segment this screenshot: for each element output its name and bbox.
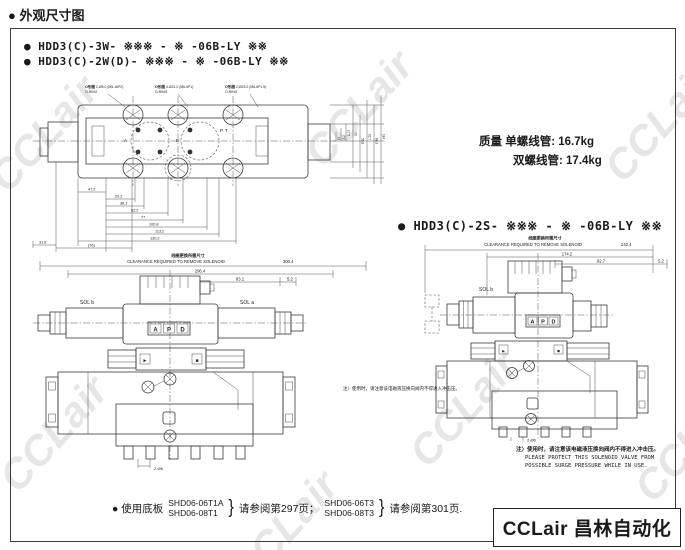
right-front-view: SOL b A P D ► ■ bbox=[425, 253, 648, 443]
subplate-reference: ● 使用底板 SHD06-06T1A SHD06-08T1 } 请参阅第297页… bbox=[112, 498, 462, 518]
dim-right-17-5: 17.5 bbox=[347, 130, 351, 136]
plate-letter-p: P bbox=[167, 328, 171, 334]
top-view-bottom-dims: 47.2 29.2 38.1 62.2 77 100.8 113.2 130.2… bbox=[33, 162, 236, 252]
note-english-line2: POSSIBLE SURGE PRESSURE WHILE IN USE. bbox=[516, 462, 659, 470]
right-drawing-note: 注〉使用时，请注意该电磁液压换向阀内不得进入冲击压。 PLEASE PROTEC… bbox=[516, 446, 659, 470]
callout-3-line1: 2-Ø23.0 (M6-6P1.5) bbox=[236, 85, 266, 89]
dim-bottom-38-1: 38.1 bbox=[120, 202, 127, 206]
callout-1-title: O形圈 bbox=[85, 84, 95, 89]
plate-letter-p: P bbox=[541, 320, 545, 326]
page-title: ● 外观尺寸图 bbox=[8, 5, 84, 24]
subplate-model: SHD06-08T1 bbox=[168, 508, 223, 518]
dim-5-2: 5.2 bbox=[287, 277, 293, 282]
dim-92-7: 92.7 bbox=[597, 259, 606, 264]
top-view: A B P. T bbox=[33, 96, 336, 186]
callout-3-title: O形圈 bbox=[225, 84, 235, 89]
weight-single: 单螺线管: 16.7kg bbox=[505, 136, 594, 148]
plate-letter-d: D bbox=[180, 328, 185, 334]
subplate-bullet-label: ● 使用底板 bbox=[112, 501, 163, 516]
right-technical-drawing: 线圈更换所需尺寸 CLEARANCE REQUIRED TO REMOVE SO… bbox=[395, 233, 685, 443]
brace-glyph: } bbox=[379, 497, 384, 519]
dim-296-4: 296.4 bbox=[195, 269, 206, 274]
dim-bottom-113-2: 113.2 bbox=[155, 230, 164, 234]
model-list: ● HDD3(C)-3W- ※※※ - ※ -06B-LY ※※ ● HDD3(… bbox=[24, 39, 289, 69]
weight-double: 双螺线管: 17.4kg bbox=[513, 155, 602, 167]
stud-dim-label: 2-Ø6 bbox=[154, 466, 164, 471]
dim-right-86-9: 86.9 bbox=[375, 138, 379, 144]
clearance-en: CLEARANCE REQUIRED TO REMOVE SOLENOID bbox=[484, 242, 582, 247]
note-chinese: 注〉使用时，请注意该电磁液压换向阀内不得进入冲击压。 bbox=[516, 446, 659, 454]
spool-symbol-right-icon: ■ bbox=[557, 349, 560, 354]
clearance-value: 242.4 bbox=[621, 242, 632, 247]
weight-label: 质量 bbox=[479, 136, 502, 148]
company-logo-box: CCLair 昌林自动化 bbox=[493, 508, 681, 547]
subplate-ref-page-297: 请参阅第297页； bbox=[239, 501, 320, 516]
clearance-cn: 线圈更换所需尺寸 bbox=[528, 235, 562, 242]
plate-letter-a: A bbox=[153, 328, 158, 334]
weight-spec: 质量 单螺线管: 16.7kg 双螺线管: 17.4kg bbox=[479, 133, 602, 171]
dim-bottom-76: (76) bbox=[88, 244, 95, 248]
model-line-2s: ● HDD3(C)-2S- ※※※ - ※ -06B-LY ※※ bbox=[398, 219, 662, 233]
subplate-model: SHD06-06T3 bbox=[324, 498, 374, 508]
top-view-right-dims: 11 7.9 17.5 73 56.8 92.7 86.9 114 bbox=[330, 95, 386, 184]
brace-glyph: } bbox=[229, 497, 234, 519]
subplate-model: SHD06-08T3 bbox=[324, 508, 374, 518]
stud-dim-label: 2-Ø6 bbox=[527, 438, 537, 443]
dim-bottom-77: 77 bbox=[141, 216, 145, 220]
dim-bottom-47-2: 47.2 bbox=[88, 188, 95, 192]
dim-174-2: 174.2 bbox=[562, 252, 573, 257]
note-english-line1: PLEASE PROTECT THIS SOLENOID VALVE FROM bbox=[516, 454, 659, 462]
front-view: SOL b SOL a A P D ► ■ bbox=[33, 270, 308, 471]
dim-bottom-130-2: 130.2 bbox=[150, 237, 160, 241]
model-line-2wd: ● HDD3(C)-2W(D)- ※※※ - ※ -06B-LY ※※ bbox=[24, 54, 289, 69]
dim-right-7-9: 7.9 bbox=[342, 135, 346, 140]
port-b-label: B bbox=[176, 138, 179, 143]
sol-a-label: SOL a bbox=[240, 300, 254, 306]
dim-right-114: 114 bbox=[382, 134, 386, 139]
right-clearance-dim: 线圈更换所需尺寸 CLEARANCE REQUIRED TO REMOVE SO… bbox=[425, 235, 667, 296]
callout-3-line2: O-RING bbox=[225, 90, 238, 94]
spool-symbol-right-icon: ■ bbox=[195, 358, 198, 364]
subplate-group2: SHD06-06T3 SHD06-08T3 bbox=[324, 498, 374, 518]
port-pt-label: P. T bbox=[220, 128, 228, 133]
model-line-3w: ● HDD3(C)-3W- ※※※ - ※ -06B-LY ※※ bbox=[24, 39, 289, 54]
dim-bottom-31-8: 31.8 bbox=[39, 241, 46, 245]
callout-2-line1: 4-Ø21.0 (M6-6P1) bbox=[166, 85, 193, 89]
dim-bottom-62-2: 62.2 bbox=[131, 209, 138, 213]
dim-bottom-100-8: 100.8 bbox=[149, 223, 159, 227]
sol-b-label: SOL b bbox=[479, 287, 493, 293]
clearance-cn: 线圈更换所需尺寸 bbox=[171, 252, 205, 259]
callout-1-line2: O-RING bbox=[85, 90, 98, 94]
clearance-en: CLEARANCE REQUIRED TO REMOVE SOLENOID bbox=[127, 259, 225, 264]
callout-2-line2: O-RING bbox=[155, 90, 168, 94]
callout-1-line1: 2-Ø5.0 (M5-16P2) bbox=[96, 85, 123, 89]
subplate-ref-page-301: 请参阅第301页. bbox=[389, 501, 462, 516]
dim-right-73: 73 bbox=[354, 132, 358, 136]
dim-right-11: 11 bbox=[337, 137, 341, 141]
plate-letter-a: A bbox=[531, 320, 535, 326]
page: CCLair CCLair CCLair CCLair CCLair CCLai… bbox=[0, 0, 685, 550]
callout-2-title: O形圈 bbox=[155, 84, 165, 89]
subplate-model: SHD06-06T1A bbox=[168, 498, 223, 508]
plate-letter-d: D bbox=[552, 320, 556, 326]
front-view-dims: 296.4 83.1 5.2 bbox=[68, 269, 333, 287]
spool-symbol-left-icon: ► bbox=[143, 358, 148, 364]
spool-symbol-left-icon: ► bbox=[501, 349, 505, 354]
dim-right-56-8: 56.8 bbox=[361, 138, 365, 144]
callout-labels: O形圈 2-Ø5.0 (M5-16P2) O-RING O形圈 4-Ø21.0 … bbox=[85, 84, 266, 107]
company-logo-text: CCLair 昌林自动化 bbox=[503, 514, 672, 541]
subplate-group1: SHD06-06T1A SHD06-08T1 bbox=[168, 498, 223, 518]
sol-b-label: SOL b bbox=[80, 300, 94, 306]
dim-bottom-29-2: 29.2 bbox=[115, 195, 122, 199]
dim-right-92-7: 92.7 bbox=[368, 134, 372, 140]
clearance-value: 300.4 bbox=[283, 259, 294, 264]
dim-5-2: 5.2 bbox=[658, 259, 664, 264]
left-drawing-note: 注〉使用时，请注意该电磁液压换向阀内不得进入冲击压。 bbox=[343, 386, 460, 392]
port-a-label: A bbox=[124, 138, 127, 143]
left-technical-drawing: O形圈 2-Ø5.0 (M5-16P2) O-RING O形圈 4-Ø21.0 … bbox=[28, 80, 388, 480]
dim-83-1: 83.1 bbox=[236, 277, 245, 282]
